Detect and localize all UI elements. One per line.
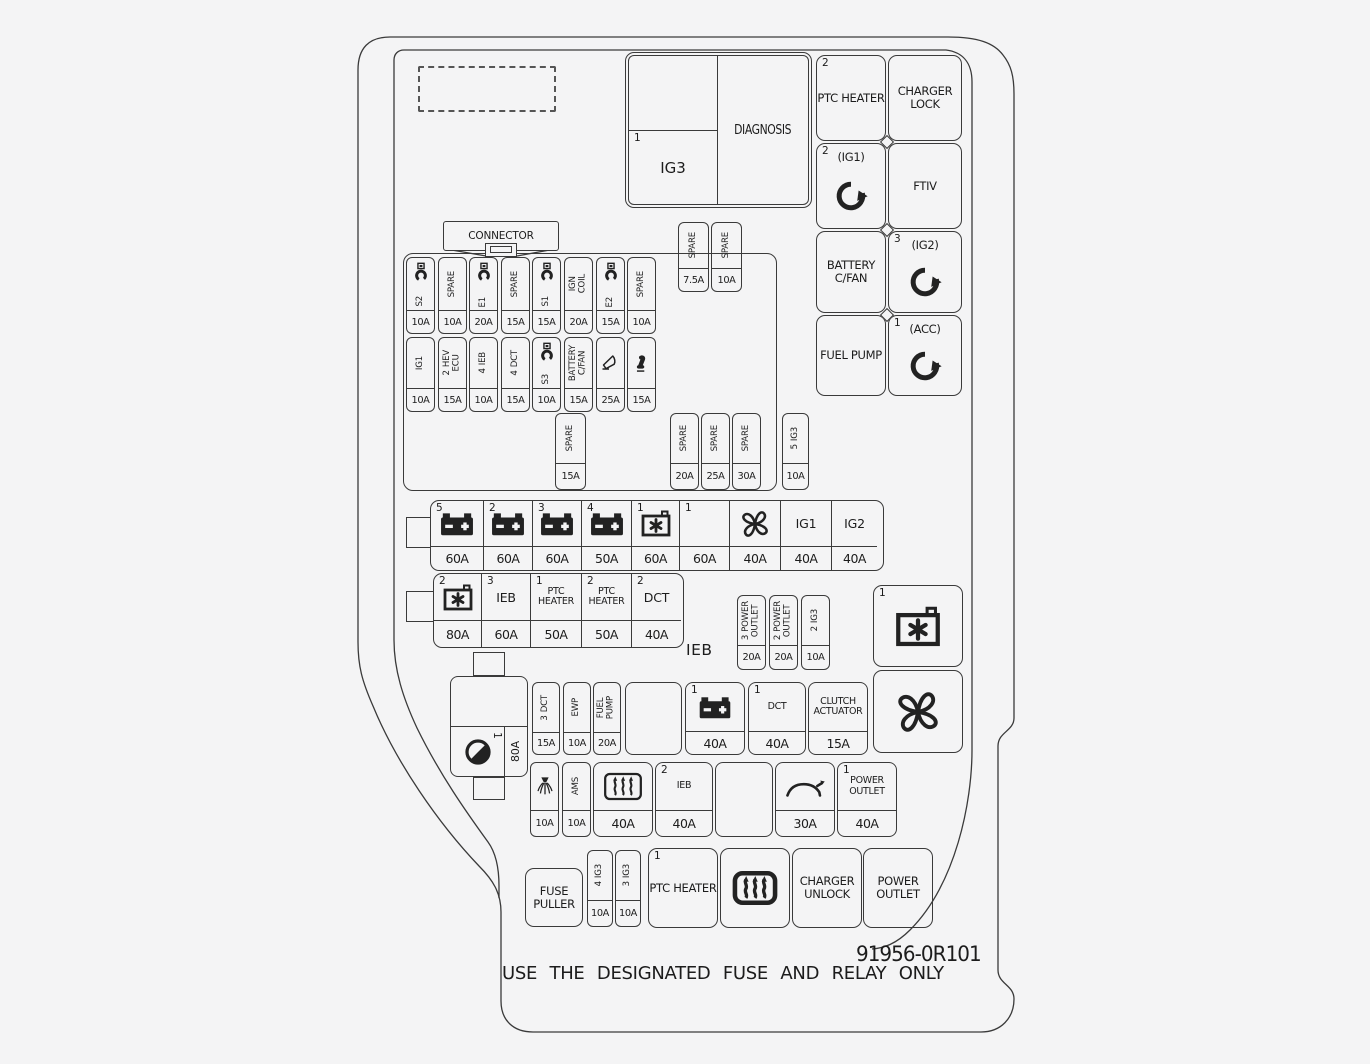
fuse-cap: 1: [686, 683, 744, 731]
fuse-ieb: 4IEB10A: [469, 337, 498, 412]
relay-cell-fan: 40A: [729, 501, 780, 570]
amp-value: 20A: [775, 652, 793, 663]
fuse-battery-c-fan: BATTERY C/FAN15A: [564, 337, 593, 412]
fuse-number: 2: [810, 623, 820, 631]
relay-amp: 40A: [781, 546, 831, 570]
fuse-amp: 10A: [628, 310, 655, 333]
fuse-label-area: FUEL PUMP: [594, 683, 620, 732]
fuse-spare: SPARE7.5A: [678, 222, 709, 292]
relay-amp: 50A: [582, 620, 631, 647]
fuse-box-blank: [625, 682, 682, 755]
relay-cap: 4: [582, 501, 631, 546]
fuse-cap: [626, 683, 681, 754]
fuse-label-area: 4IG3: [588, 851, 612, 900]
fuse-label: CLUTCH ACTUATOR: [809, 697, 867, 718]
fuse-box-ieb: 2IEB40A: [655, 762, 713, 837]
fuse-label-text: EWP: [571, 698, 581, 717]
fuse-amp: 10A: [470, 388, 497, 411]
fuse-label: S3: [542, 374, 552, 385]
cell-number: 1: [654, 851, 661, 862]
amp-value: 60A: [495, 627, 518, 642]
fuse-label-area: 3DCT: [533, 683, 559, 732]
amp-value: 40A: [856, 816, 879, 831]
box-label: CHARGER LOCK: [889, 85, 961, 111]
fuse-amp: 15A: [565, 388, 592, 411]
connector-slot-inner: [490, 246, 512, 253]
fuse-amp: 7.5A: [679, 268, 708, 291]
cell-number: 1: [634, 133, 641, 144]
relay-cap: 5: [431, 501, 483, 546]
fuse-amp: 40A: [749, 731, 805, 754]
fuse-s1: S115A: [532, 257, 561, 334]
fuse-label: POWER OUTLET: [838, 776, 896, 797]
fuse-label-area: 2HEV ECU: [439, 338, 466, 388]
fuse-number: 2: [442, 367, 452, 375]
fuse-amp: 25A: [702, 463, 729, 489]
cell-number: 1: [879, 588, 886, 599]
amp-value: 10A: [412, 395, 430, 406]
amp-value: 60A: [693, 551, 716, 566]
relay-label: IG1: [796, 518, 817, 529]
amp-value: 60A: [644, 551, 667, 566]
fuse-label-area: SPARE: [502, 258, 529, 310]
fuse-amp: 40A: [686, 731, 744, 754]
dial-block-bottom-tab: [473, 777, 505, 800]
amp-value: 10A: [538, 395, 556, 406]
defrost-icon: [603, 770, 643, 803]
fuse-label-text: AMS: [571, 777, 581, 795]
dial-relay-cell: 1: [451, 727, 504, 776]
fuse-label: 5IG3: [791, 427, 801, 449]
amp-value: 10A: [807, 652, 825, 663]
relay-cell-ig1: IG140A: [780, 501, 831, 570]
fuse-box-diagram: 1 IG3 DIAGNOSIS CONNECTOR 1 80A IEB 9195: [0, 0, 1370, 1064]
fuse-label-area: S3: [533, 338, 560, 388]
battery-icon: [490, 511, 526, 537]
box-charger-unlock: CHARGER UNLOCK: [792, 848, 862, 928]
dial-amp-cell: 80A: [504, 727, 527, 776]
fuse-label: AMS: [572, 777, 582, 795]
connector-label: CONNECTOR: [468, 230, 533, 242]
fuse-amp: 15A: [628, 388, 655, 411]
amp-value: 15A: [507, 395, 525, 406]
cell-number: 1: [637, 503, 644, 514]
fuse-e2: E215A: [596, 257, 625, 334]
fuse-label-area: SPARE: [671, 414, 698, 463]
fuse-label-text: IGN COIL: [568, 274, 588, 293]
fuse-cap: [716, 763, 772, 836]
fuse-label: SPARE: [637, 271, 647, 297]
amp-value: 40A: [744, 551, 767, 566]
fuse-label: SPARE: [566, 425, 576, 451]
fuse-amp: 10A: [531, 810, 558, 836]
fuse-amp: 10A: [563, 810, 590, 836]
battery-icon: [698, 695, 732, 720]
module-icon: [540, 262, 554, 283]
fuse-amp: 20A: [565, 310, 592, 333]
relay-amp: 40A: [832, 546, 877, 570]
amp-value: 40A: [673, 816, 696, 831]
fuse-label-text: IG3: [790, 427, 800, 441]
fuse-amp: 10A: [564, 732, 590, 754]
amp-value: 40A: [843, 551, 866, 566]
relay-cap: IG1: [781, 501, 831, 546]
fuse-label-area: AMS: [563, 763, 590, 810]
fuse-dct: 3DCT15A: [532, 682, 560, 755]
fuse-label: E1: [479, 297, 489, 308]
fuse-label: IG1: [416, 356, 426, 370]
fuse-amp: 25A: [597, 388, 624, 411]
box-ig2: 3(IG2): [888, 231, 962, 313]
amp-value: 15A: [538, 317, 556, 328]
rotate-cw-icon: [907, 264, 943, 300]
fuse-number: 4: [594, 878, 604, 886]
cell-number: 5: [436, 503, 443, 514]
amp-value: 20A: [598, 738, 616, 749]
relay-cell-ptc-heater: 2PTC HEATER50A: [581, 574, 631, 647]
fuse-amp: 40A: [594, 810, 652, 836]
amp-value: 25A: [602, 395, 620, 406]
box-battery-snowflake: 1: [873, 585, 963, 667]
amp-value: 10A: [619, 908, 637, 919]
fuse-amp: 20A: [470, 310, 497, 333]
fuse-horn: 25A: [596, 337, 625, 412]
amp-value: 7.5A: [683, 275, 704, 286]
fuse-label: 3POWER OUTLET: [742, 601, 761, 640]
fuse-label-text: IG1: [415, 356, 425, 370]
fuse-number: 4: [510, 368, 520, 376]
fuse-label-text: POWER OUTLET: [773, 601, 793, 637]
icon-area: [892, 686, 944, 738]
fuse-cap: CLUTCH ACTUATOR: [809, 683, 867, 731]
fuse-power-outlet: 2POWER OUTLET20A: [769, 595, 798, 670]
fuse-label-text: SPARE: [741, 425, 751, 451]
fuse-amp: 20A: [594, 732, 620, 754]
fuse-amp: 40A: [656, 810, 712, 836]
fuse-label-text: SPARE: [636, 271, 646, 297]
fuse-label-text: SPARE: [710, 425, 720, 451]
module-icon: [414, 262, 428, 283]
fuse-label-area: 3IG3: [616, 851, 640, 900]
amp-value: 10A: [591, 908, 609, 919]
fuse-label-area: SPARE: [439, 258, 466, 310]
relay-group-relay-row2: 280A3IEB60A1PTC HEATER50A2PTC HEATER50A2…: [433, 573, 684, 648]
battery-snowflake-icon: [641, 510, 671, 537]
amp-value: 10A: [787, 471, 805, 482]
amp-value: 30A: [794, 816, 817, 831]
fuse-number: 4: [478, 365, 488, 373]
fuse-label-area: E2: [597, 258, 624, 310]
icon-area: [732, 869, 778, 907]
fuse-box-power-outlet: 1POWER OUTLET40A: [837, 762, 897, 837]
amp-value: 20A: [676, 471, 694, 482]
fuse-label-area: 4DCT: [502, 338, 529, 388]
cell-number: 3: [894, 234, 901, 245]
fuse-label-area: 2POWER OUTLET: [770, 596, 797, 645]
box-label: (IG2): [911, 239, 938, 252]
fuse-cap: [594, 763, 652, 810]
fuse-label: EWP: [572, 698, 582, 717]
relay-cap: 3: [533, 501, 581, 546]
fuse-label-area: E1: [470, 258, 497, 310]
fuse-box-defrost: 40A: [593, 762, 653, 837]
relay-cell-battery: 560A: [431, 501, 483, 570]
horn-filled-icon: [631, 352, 653, 374]
amp-value: 10A: [444, 317, 462, 328]
icon-area: [895, 606, 941, 647]
amp-value: 60A: [446, 551, 469, 566]
cell-number: 2: [439, 576, 446, 587]
horn-icon: [599, 351, 623, 375]
fuse-label-text: POWER OUTLET: [741, 601, 761, 637]
fuse-label-text: SPARE: [447, 271, 457, 297]
fuse-spare: SPARE10A: [438, 257, 467, 334]
module-icon: [477, 262, 491, 283]
fuse-label: 4DCT: [511, 350, 521, 376]
fuse-box-battery: 140A: [685, 682, 745, 755]
amp-value: 20A: [475, 317, 493, 328]
warning-text: USE THE DESIGNATED FUSE AND RELAY ONLY: [502, 963, 944, 984]
fuse-label: 4IG3: [595, 864, 605, 886]
fuse-label-area: SPARE: [712, 223, 741, 268]
cell-number: 1: [843, 765, 850, 776]
fuse-amp: 10A: [802, 645, 829, 669]
box-ptc-heater: 2PTC HEATER: [816, 55, 886, 141]
box-label: FUEL PUMP: [820, 349, 882, 362]
fuse-label-area: SPARE: [733, 414, 760, 463]
fuse-number: 3: [540, 712, 550, 720]
fuse-label: 2POWER OUTLET: [774, 601, 793, 640]
battery-icon: [439, 511, 475, 537]
amp-value: 10A: [536, 818, 554, 829]
box-defrost-bold: [720, 848, 790, 928]
fuse-box-car-tailgate: 30A: [775, 762, 835, 837]
rotate-cw-icon: [833, 178, 869, 214]
cell-number: 3: [538, 503, 545, 514]
fuse-box-clutch-actuator: CLUTCH ACTUATOR15A: [808, 682, 868, 755]
ig3-relay-cell: 1 IG3: [629, 131, 717, 204]
relay-amp: 60A: [484, 546, 532, 570]
fuse-label-text: S1: [541, 296, 551, 307]
relay-label: IEB: [496, 592, 516, 603]
fuse-ig3: 3IG310A: [615, 850, 641, 927]
box-ftiv: FTIV: [888, 143, 962, 229]
fuse-number: 3: [741, 632, 751, 640]
fuse-ewp: EWP10A: [563, 682, 591, 755]
relay-cell-battery-snowflake: 160A: [631, 501, 679, 570]
box-fan: [873, 670, 963, 753]
fuse-label-text: S3: [541, 374, 551, 385]
relay-cap: 3IEB: [482, 574, 530, 620]
ieb-label: IEB: [686, 641, 713, 659]
cell-number: 1: [491, 732, 502, 739]
fuse-amp: 15A: [502, 388, 529, 411]
box-charger-lock: CHARGER LOCK: [888, 55, 962, 141]
cell-number: 2: [637, 576, 644, 587]
cell-number: 4: [587, 503, 594, 514]
relay-label: PTC HEATER: [531, 587, 581, 607]
fuse-label-text: FUEL PUMP: [596, 696, 616, 719]
fuse-label-text: SPARE: [679, 425, 689, 451]
battery-snowflake-icon: [443, 584, 473, 611]
relay-label: PTC HEATER: [582, 587, 631, 607]
amp-value: 80A: [446, 627, 469, 642]
module-icon: [540, 342, 554, 363]
amp-value: 10A: [718, 275, 736, 286]
fuse-label: IGN COIL: [569, 274, 588, 293]
fuse-label-area: SPARE: [702, 414, 729, 463]
fuse-ig1: IG110A: [406, 337, 435, 412]
amp-value: 40A: [612, 816, 635, 831]
amp-value: 40A: [766, 736, 789, 751]
fuse-ig3: 5IG310A: [782, 413, 809, 490]
box-label: POWER OUTLET: [864, 875, 932, 901]
fuse-spare: SPARE20A: [670, 413, 699, 490]
amp-value: 10A: [633, 317, 651, 328]
relay-cap: 1: [680, 501, 729, 546]
amp-value: 25A: [707, 471, 725, 482]
fuse-label-text: S2: [415, 296, 425, 307]
relay-row2-tab: [406, 591, 434, 622]
fuse-label-text: SPARE: [688, 232, 698, 258]
fuse-label-text: IG3: [810, 609, 820, 623]
fuse-label-area: BATTERY C/FAN: [565, 338, 592, 388]
cell-number: 1: [691, 685, 698, 696]
relay-amp: 60A: [680, 546, 729, 570]
fuse-spare: SPARE10A: [711, 222, 742, 292]
amp-value: 80A: [511, 741, 521, 762]
fuse-label: SPARE: [742, 425, 752, 451]
diagnosis-cell: DIAGNOSIS: [718, 56, 808, 204]
amp-value: 20A: [570, 317, 588, 328]
battery-snowflake-icon: [895, 606, 941, 647]
box-power-outlet: POWER OUTLET: [863, 848, 933, 928]
box-acc: 1(ACC): [888, 315, 962, 396]
fuse-label: SPARE: [722, 232, 732, 258]
fuse-label-text: IEB: [478, 352, 488, 365]
fuse-label-text: IG3: [594, 864, 604, 878]
relay-cap: 1: [632, 501, 679, 546]
fuse-amp: 15A: [533, 310, 560, 333]
amp-value: 50A: [545, 627, 568, 642]
amp-value: 15A: [570, 395, 588, 406]
cell-number: 1: [894, 318, 901, 329]
diagnosis-label: DIAGNOSIS: [735, 122, 792, 138]
fuse-label-area: 2IG3: [802, 596, 829, 645]
fan-icon: [738, 507, 772, 541]
fuse-ams: AMS10A: [562, 762, 591, 837]
box-ig1: 2(IG1): [816, 143, 886, 229]
fuse-spare: SPARE15A: [501, 257, 530, 334]
fuse-ig3: 4IG310A: [587, 850, 613, 927]
fuse-label-area: EWP: [564, 683, 590, 732]
fuse-amp: 20A: [671, 463, 698, 489]
fuse-label-text: E2: [605, 297, 615, 308]
amp-value: 40A: [645, 627, 668, 642]
empty-cell: [629, 56, 717, 131]
relay-amp: 60A: [533, 546, 581, 570]
dial-icon: [463, 737, 493, 767]
amp-value: 15A: [444, 395, 462, 406]
cell-number: 1: [536, 576, 543, 587]
fuse-label-area: 3POWER OUTLET: [738, 596, 765, 645]
defrost-bold-icon: [732, 869, 778, 907]
amp-value: 40A: [704, 736, 727, 751]
fuse-amp: 30A: [733, 463, 760, 489]
fuse-power-outlet: 3POWER OUTLET20A: [737, 595, 766, 670]
relay-amp: 80A: [434, 620, 481, 647]
amp-value: 10A: [412, 317, 430, 328]
fuse-label-text: SPARE: [510, 271, 520, 297]
fuse-label-text: SPARE: [721, 232, 731, 258]
relay-label: DCT: [644, 592, 669, 603]
fuse-label: 2IG3: [811, 609, 821, 631]
dashed-placeholder-box: [418, 66, 556, 112]
relay-cap: 2: [434, 574, 481, 620]
box-label: FUSE PULLER: [526, 885, 582, 911]
amp-value: 15A: [537, 738, 555, 749]
cell-number: 3: [487, 576, 494, 587]
fuse-amp: 15A: [439, 388, 466, 411]
fuse-label: SPARE: [511, 271, 521, 297]
fuse-label-area: SPARE: [556, 414, 585, 463]
battery-icon: [539, 511, 575, 537]
fuse-number: 5: [790, 441, 800, 449]
fuse-hev-ecu: 2HEV ECU15A: [438, 337, 467, 412]
cell-number: 2: [822, 58, 829, 69]
dial-80a-block: 1 80A: [450, 676, 528, 777]
fuse-s2: S210A: [406, 257, 435, 334]
fuse-washer: 10A: [530, 762, 559, 837]
washer-icon: [534, 775, 556, 799]
fuse-cap: 1DCT: [749, 683, 805, 731]
fuse-label-area: 4IEB: [470, 338, 497, 388]
fuse-label: SPARE: [448, 271, 458, 297]
fuse-box-dct: 1DCT40A: [748, 682, 806, 755]
box-fuse-puller: FUSE PULLER: [525, 868, 583, 927]
fuse-label: IEB: [677, 781, 691, 792]
fuse-label: 3DCT: [541, 695, 551, 721]
fuse-amp: 15A: [597, 310, 624, 333]
fuse-dct: 4DCT15A: [501, 337, 530, 412]
relay-cell-ptc-heater: 1PTC HEATER50A: [530, 574, 581, 647]
fuse-label-area: [628, 338, 655, 388]
fuse-spare: SPARE10A: [627, 257, 656, 334]
box-ptc-heater: 1PTC HEATER: [648, 848, 718, 928]
fuse-label: FUEL PUMP: [597, 696, 616, 719]
box-battery-c-fan: BATTERY C/FAN: [816, 231, 886, 313]
cell-number: 2: [489, 503, 496, 514]
relay-label: IG2: [844, 518, 865, 529]
cell-number: 2: [661, 765, 668, 776]
fuse-amp: 10A: [616, 900, 640, 926]
rotate-cw-icon: [907, 348, 943, 384]
fuse-amp: 30A: [776, 810, 834, 836]
fuse-label-text: IG3: [622, 864, 632, 878]
fuse-label-area: IG1: [407, 338, 434, 388]
relay-cell-ig2: IG240A: [831, 501, 877, 570]
fuse-label: S1: [542, 296, 552, 307]
fuse-number: 2: [773, 632, 783, 640]
fuse-amp: 10A: [712, 268, 741, 291]
relay-group-relay-row1: 560A260A360A450A160A160A40AIG140AIG240A: [430, 500, 884, 571]
cell-number: 1: [754, 685, 761, 696]
box-label: PTC HEATER: [817, 92, 884, 105]
box-label: (IG1): [837, 151, 864, 164]
amp-value: 10A: [568, 738, 586, 749]
relay-cap: IG2: [832, 501, 877, 546]
relay-cell-battery: 360A: [532, 501, 581, 570]
